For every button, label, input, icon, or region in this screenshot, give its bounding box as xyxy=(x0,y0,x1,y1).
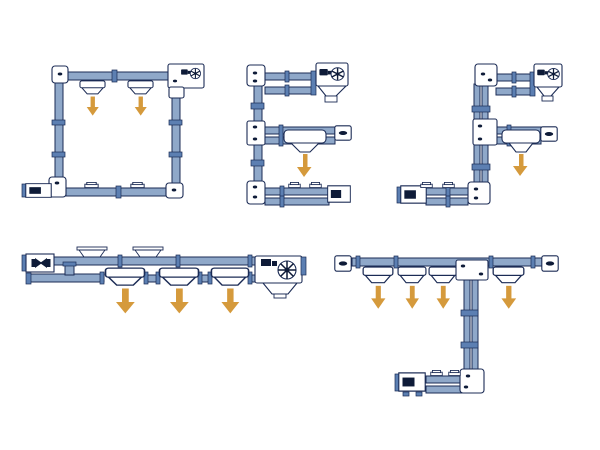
end-cap xyxy=(335,126,351,140)
tube-flange xyxy=(512,72,516,83)
tube-flange xyxy=(100,272,104,284)
discharge-outlet xyxy=(160,268,199,313)
discharge-outlet xyxy=(363,267,393,309)
feed-inlet-box xyxy=(399,373,425,391)
discharge-down-arrow-head xyxy=(513,166,528,176)
outlet-box xyxy=(284,130,326,143)
tube-flange xyxy=(285,85,289,96)
junction-bolt xyxy=(253,186,257,189)
drive-discharge-funnel xyxy=(263,283,297,294)
tube-flange xyxy=(446,196,450,207)
drive-bolt xyxy=(173,80,177,83)
corner-unit-bottom-right xyxy=(166,183,183,198)
diagram-straight-run xyxy=(22,247,306,313)
inlet-port xyxy=(421,182,433,187)
tube-flange xyxy=(356,256,360,268)
outlet-funnel xyxy=(291,143,319,152)
tube-flange xyxy=(176,255,180,267)
drive-unit xyxy=(534,64,562,101)
drive-unit xyxy=(168,64,204,98)
junction-top xyxy=(247,65,265,86)
tube-flange xyxy=(280,186,284,197)
tube-foot-lower xyxy=(426,386,462,393)
discharge-outlet xyxy=(128,81,153,116)
tube-flange xyxy=(461,310,478,316)
tube-flange xyxy=(52,120,65,125)
inlet-port xyxy=(85,182,98,187)
discharge-outlet xyxy=(80,81,105,116)
tube-bottom-arm-upper xyxy=(265,188,329,195)
outlet-funnel xyxy=(509,143,533,152)
tube-flange xyxy=(118,255,122,267)
junction-bolt xyxy=(478,125,482,128)
corner-bolt xyxy=(474,188,478,191)
inlet-port xyxy=(449,370,461,375)
corner-bolt xyxy=(464,386,468,389)
inlet-port xyxy=(289,182,301,187)
tube-flange xyxy=(311,71,316,95)
drive-corner xyxy=(169,87,184,98)
corner-bolt xyxy=(481,73,485,76)
junction-bolt xyxy=(479,273,483,276)
inlet-port xyxy=(131,182,144,187)
tube-flange xyxy=(472,164,490,170)
corner-bolt xyxy=(488,79,492,82)
corner-unit-top-left xyxy=(52,66,68,83)
junction-bolt xyxy=(253,196,257,199)
tube-flange xyxy=(531,256,535,268)
discharge-outlet xyxy=(493,267,524,309)
tube-top-run xyxy=(66,72,172,80)
tube-bottom-arm-lower xyxy=(265,198,329,205)
tube-flange xyxy=(279,125,283,146)
conveyor-diagrams-svg xyxy=(0,0,600,450)
drive-discharge-spout xyxy=(274,294,286,298)
junction-bolt xyxy=(478,138,482,141)
junction-bolt xyxy=(253,80,257,83)
discharge-outlet xyxy=(284,130,326,177)
discharge-down-arrow-shaft xyxy=(303,154,308,168)
corner-bolt xyxy=(474,197,478,200)
diagram-t-shape xyxy=(335,256,558,396)
diagram-f-shape xyxy=(397,64,562,207)
feed-inlet-box xyxy=(401,186,426,203)
junction-bolt xyxy=(253,126,257,129)
tube-flange xyxy=(169,152,182,157)
corner-unit-bottom xyxy=(460,369,484,393)
tube-flange xyxy=(52,152,65,157)
end-cap xyxy=(541,127,557,141)
feed-hopper-tray xyxy=(135,250,161,257)
tail-unit xyxy=(22,254,54,272)
motor-body xyxy=(261,259,271,266)
diagram-e-shape xyxy=(247,63,351,207)
tube-flange xyxy=(63,262,76,266)
feed-hopper xyxy=(133,247,163,257)
junction-middle xyxy=(473,119,497,145)
tube-flange xyxy=(489,256,493,268)
junction-bolt xyxy=(253,138,257,141)
inlet-port xyxy=(310,182,322,187)
tube-flange xyxy=(116,186,121,198)
tube-flange xyxy=(512,86,516,97)
end-cap xyxy=(335,256,351,271)
end-flange xyxy=(26,273,31,284)
end-flange xyxy=(301,257,306,275)
end-cap xyxy=(542,256,558,271)
motor-fan-hub xyxy=(285,268,290,273)
feed-inlet-box xyxy=(26,184,51,198)
drive-discharge-spout xyxy=(325,96,337,102)
tube-leg-right xyxy=(472,280,478,372)
drive-discharge-funnel xyxy=(537,87,559,96)
tube-foot-upper xyxy=(426,376,462,383)
tube-right-run xyxy=(172,97,180,183)
tube-flange xyxy=(248,255,252,267)
tube-flange xyxy=(472,106,490,112)
discharge-outlet xyxy=(502,130,540,176)
feed-hopper xyxy=(77,247,107,257)
diagram-canvas xyxy=(0,0,600,450)
drive-unit xyxy=(255,256,306,298)
junction-bolt xyxy=(253,72,257,75)
junction-bolt xyxy=(461,265,465,268)
inlet-port xyxy=(431,370,443,375)
corner-bolt xyxy=(58,73,63,76)
junction-center xyxy=(456,260,488,280)
tube-flange xyxy=(251,103,264,109)
feed-hopper-tray xyxy=(79,250,105,257)
corner-bolt xyxy=(172,189,177,192)
tube-leg-left xyxy=(464,280,470,372)
tube-top-run xyxy=(352,258,542,266)
tube-flange xyxy=(112,70,117,82)
tube-flange xyxy=(251,160,264,166)
discharge-down-arrow-head xyxy=(297,167,312,177)
discharge-outlet xyxy=(106,268,145,313)
diagram-rectangular-loop xyxy=(22,64,204,198)
discharge-outlet xyxy=(211,268,248,313)
support-foot xyxy=(403,392,409,396)
tube-left-run xyxy=(55,83,63,178)
drive-discharge-spout xyxy=(542,96,553,101)
motor-coupling xyxy=(272,261,277,266)
junction-bottom xyxy=(247,181,265,204)
tube-flange xyxy=(461,342,478,348)
junction-middle xyxy=(247,121,265,145)
drive-discharge-funnel xyxy=(318,86,346,96)
feed-inlet-box xyxy=(328,186,351,202)
drive-unit xyxy=(316,63,348,102)
corner-bolt xyxy=(466,375,470,378)
corner-unit-bottom xyxy=(468,182,490,204)
discharge-down-arrow-shaft xyxy=(519,154,524,167)
tube-flange xyxy=(394,256,398,268)
outlet-box xyxy=(502,130,540,143)
corner-bolt xyxy=(55,182,60,185)
discharge-outlet xyxy=(398,267,426,309)
discharge-outlet xyxy=(429,267,457,309)
tube-flange xyxy=(169,120,182,125)
tube-flange xyxy=(285,71,289,82)
corner-unit-top xyxy=(475,64,497,86)
support-foot xyxy=(416,392,422,396)
inlet-port xyxy=(443,182,455,187)
tube-flange xyxy=(280,196,284,207)
